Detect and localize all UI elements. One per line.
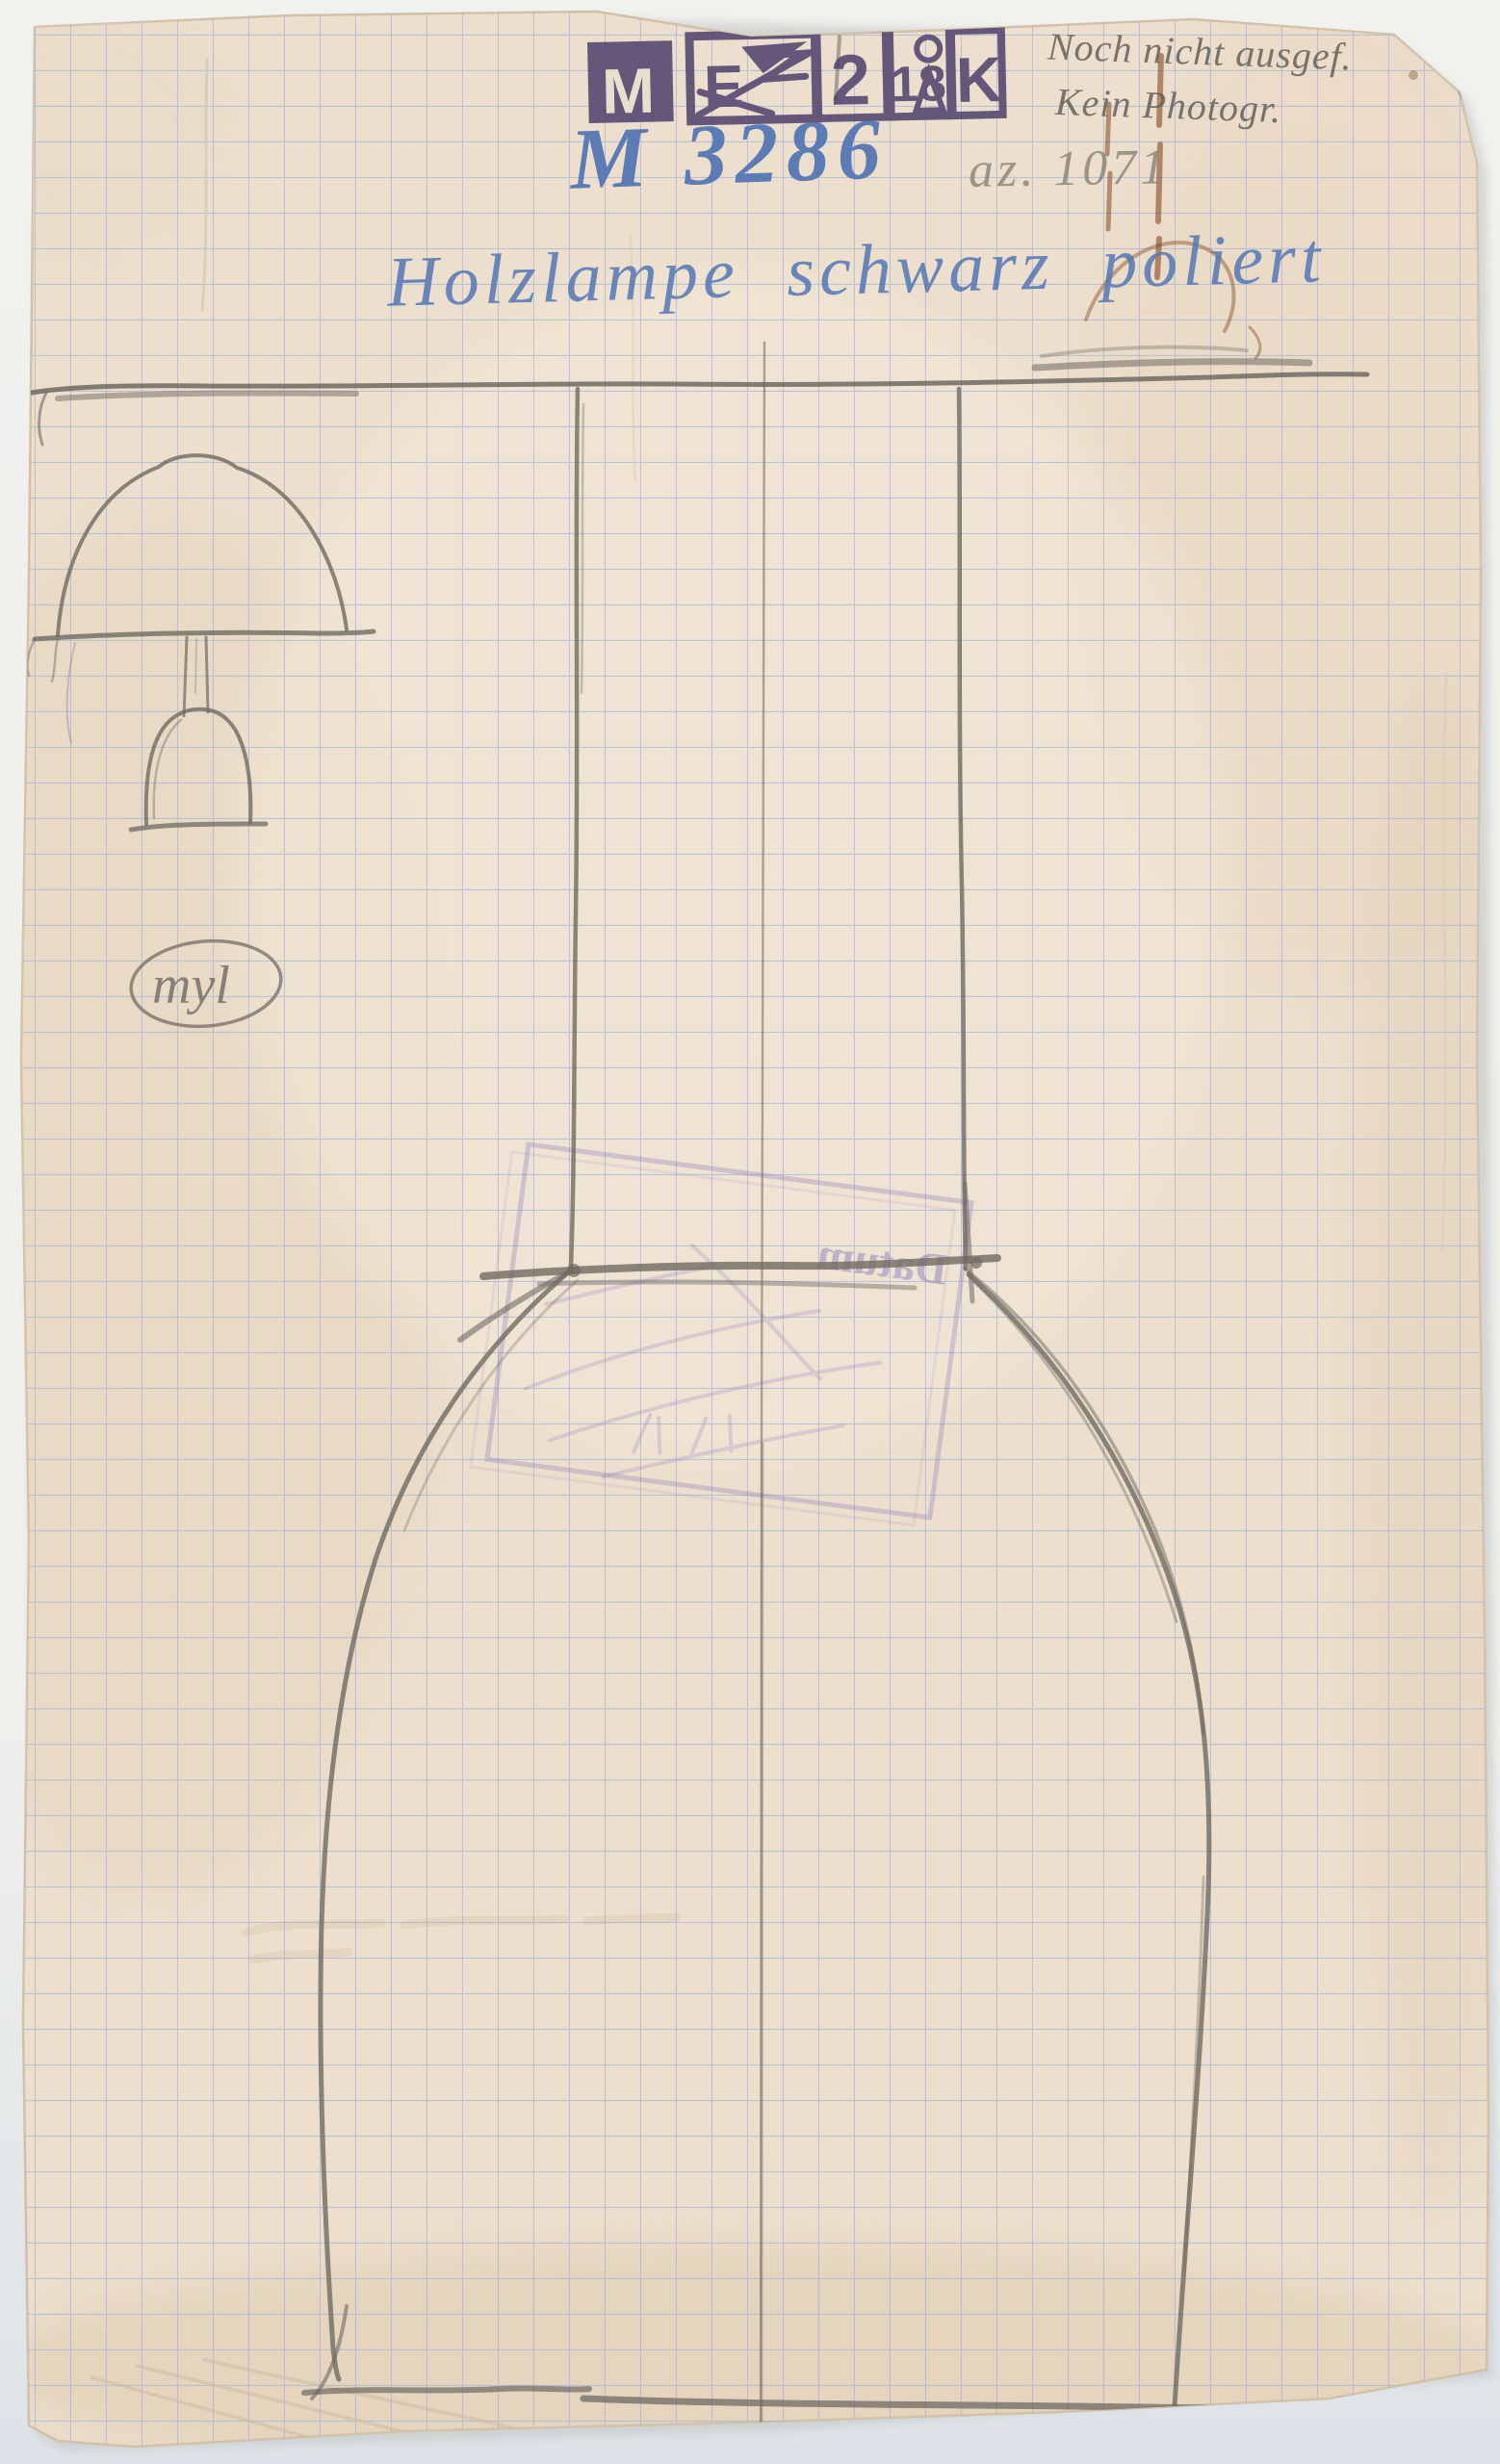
note-line-2: Kein Photogr. bbox=[1054, 83, 1281, 129]
scanned-sketch-sheet: Datum bbox=[0, 0, 1500, 2464]
monogram-text: myl bbox=[152, 956, 230, 1015]
az-number: az. 1071 bbox=[969, 142, 1170, 196]
inventory-number: M 3286 bbox=[569, 106, 890, 203]
stamp-letter-k: K bbox=[955, 43, 1003, 115]
scan-graphics: Datum bbox=[0, 0, 1500, 2464]
note-line-1: Noch nicht ausgef. bbox=[1047, 27, 1353, 76]
